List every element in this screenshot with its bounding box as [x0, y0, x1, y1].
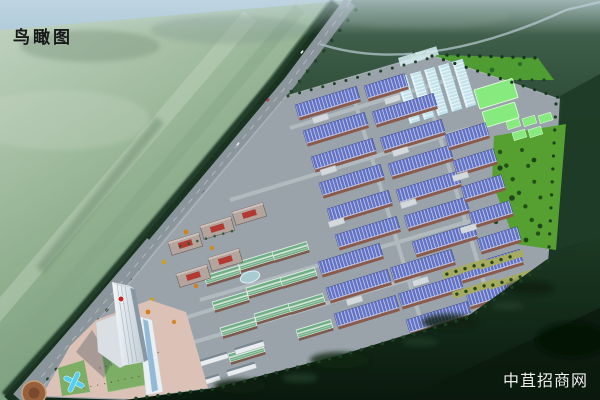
- tree-icon: [490, 68, 495, 73]
- tree-icon: [524, 238, 529, 243]
- tree-icon: [194, 284, 198, 288]
- tree-icon: [172, 320, 176, 324]
- watermark: 中苴招商网: [503, 367, 588, 391]
- tree-icon: [210, 246, 214, 250]
- industrial-park-scene: [0, 0, 600, 400]
- plaza-roundel-center: [29, 388, 40, 399]
- tree-icon: [184, 230, 189, 235]
- tree-icon: [532, 158, 537, 163]
- tower-logo: [118, 296, 124, 302]
- tree-icon: [518, 62, 522, 66]
- tree-icon: [509, 195, 515, 201]
- birdseye-title: 鸟瞰图: [13, 23, 73, 48]
- tree-icon: [162, 260, 167, 265]
- birdseye-rendering: 鸟瞰图 中苴招商网: [0, 0, 600, 400]
- tree-icon: [538, 224, 543, 229]
- tree-icon: [146, 310, 151, 315]
- tree-icon: [497, 165, 502, 170]
